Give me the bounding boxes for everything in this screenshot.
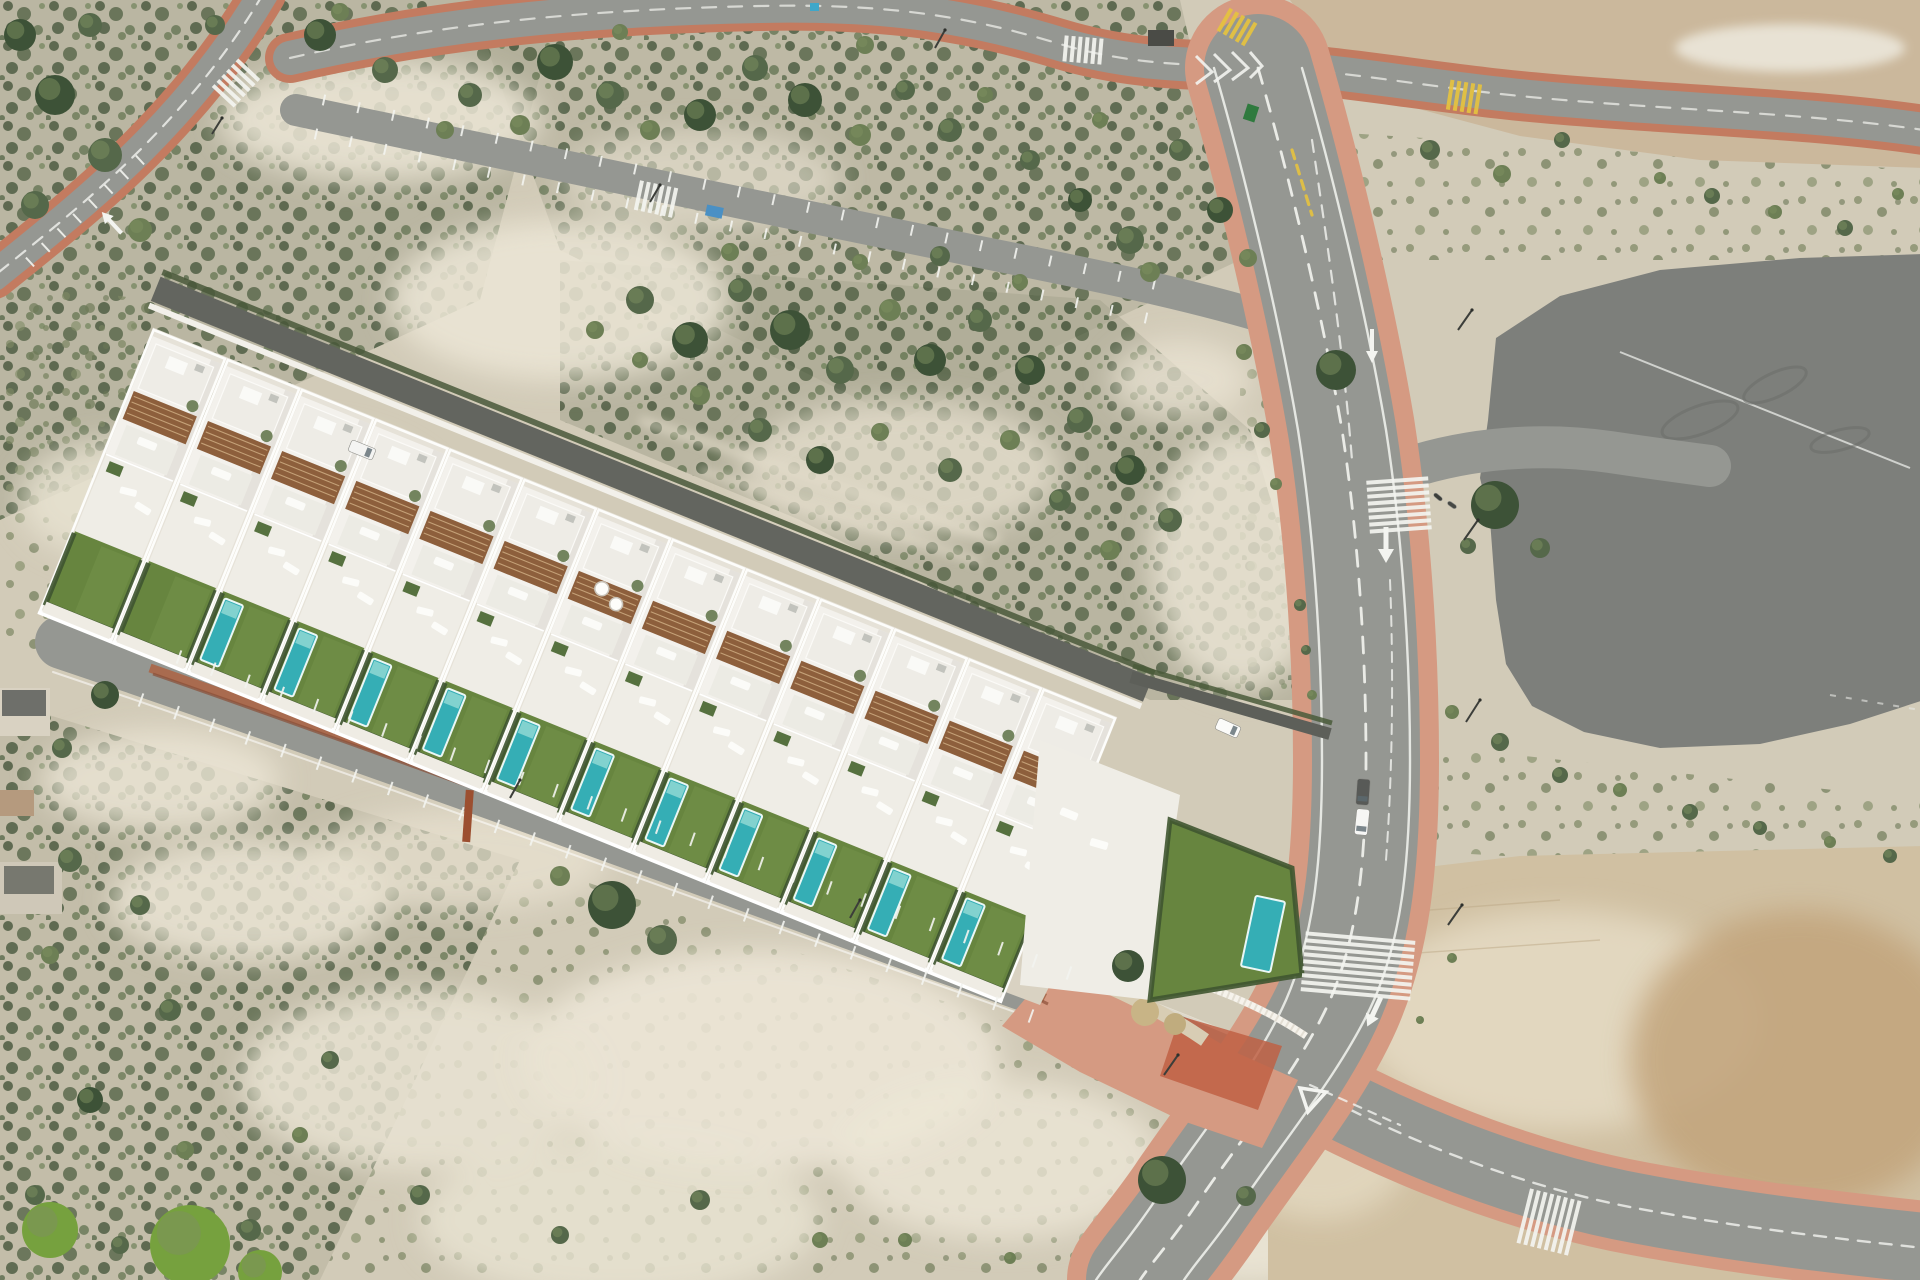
scene-canvas [0,0,1920,1280]
parked-white-car [1354,808,1370,835]
small-shed [1148,30,1174,46]
road-to-pad [1408,447,1710,468]
blue-road-sign [810,3,819,11]
parked-dark-car [1356,779,1371,806]
asphalt-pad [1480,254,1920,748]
aerial-photo-villa-development: Aerial drone photograph of a new-build r… [0,0,1920,1280]
